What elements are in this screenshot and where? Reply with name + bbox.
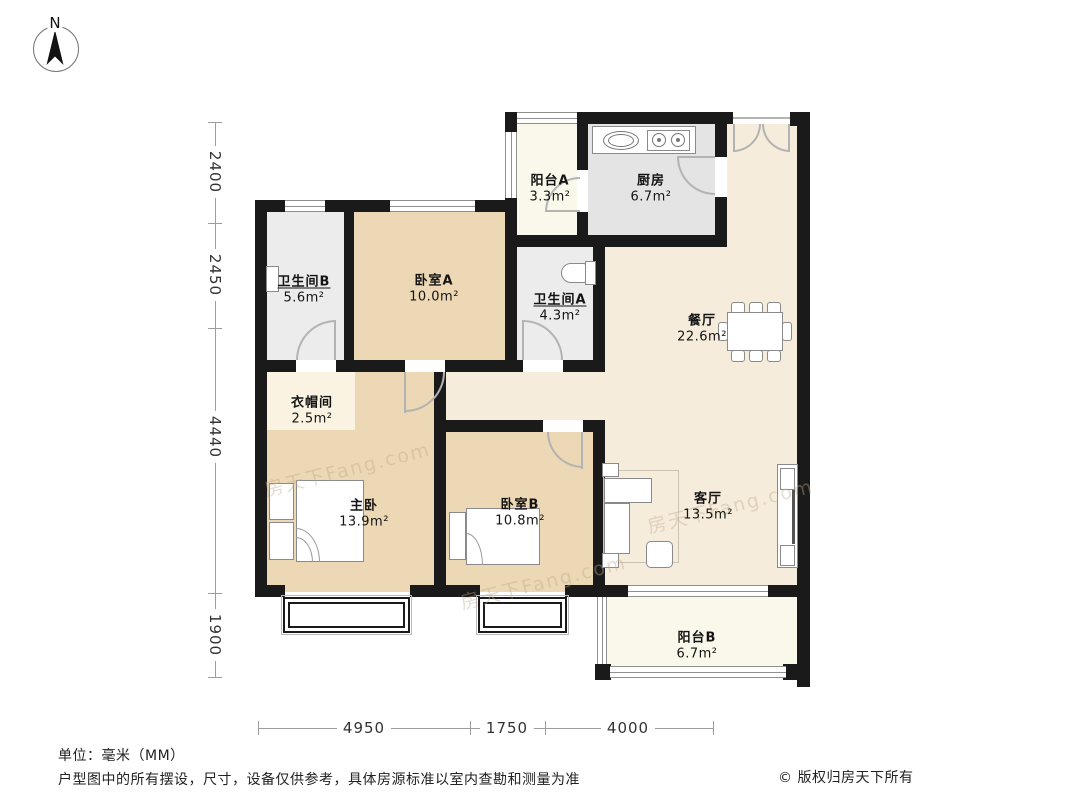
wall: [344, 212, 354, 360]
wall: [797, 112, 810, 687]
nightstand: [449, 512, 466, 560]
bay-window-bedroom-b: [478, 597, 567, 633]
dim-label: 4000: [601, 718, 655, 738]
bathroom-a-door-leaf: [522, 320, 524, 360]
compass-north-label: N: [47, 14, 62, 32]
dim-label: 4440: [205, 411, 225, 463]
bedroom-b-door-leaf: [581, 432, 583, 469]
unit-note: 单位：毫米（MM）: [58, 745, 185, 765]
dim-tick: [470, 721, 471, 735]
balcony-a-door-leaf: [545, 210, 580, 212]
room-label-bedroom-a: 卧室A 10.0m²: [409, 270, 459, 305]
entry-door-left-leaf: [733, 124, 735, 152]
stove-burner: [671, 133, 685, 147]
wall: [505, 235, 727, 247]
dim-tick: [208, 223, 222, 224]
dim-tick: [258, 721, 259, 735]
kitchen-door-leaf: [677, 156, 715, 158]
tv-cabinet-shelf: [780, 545, 795, 566]
disclaimer-text: 户型图中的所有摆设，尺寸，设备仅供参考，具体房源标准以室内查勘和测量为准: [58, 769, 580, 789]
tv-cabinet-shelf: [780, 468, 795, 490]
room-label-balcony-b: 阳台B 6.7m²: [676, 627, 717, 662]
sofa-armrest: [602, 463, 619, 477]
dining-chair: [782, 322, 792, 341]
entry-threshold: [733, 117, 790, 119]
nightstand: [269, 483, 294, 520]
wall: [255, 200, 267, 597]
dim-label: 4950: [337, 718, 391, 738]
dining-table: [727, 312, 783, 351]
wall: [336, 360, 405, 372]
balcony-railing: [610, 666, 786, 678]
window: [597, 597, 607, 664]
dim-label: 2400: [205, 146, 225, 198]
copyright-text: © 版权归房天下所有: [778, 767, 913, 787]
dim-label: 1900: [205, 609, 225, 661]
dining-chair: [767, 350, 781, 362]
dim-label: 1750: [480, 718, 534, 738]
dim-tick: [545, 721, 546, 735]
room-label-bathroom-a: 卫生间A 4.3m²: [533, 289, 586, 324]
wall: [577, 124, 588, 170]
room-label-living: 客厅 13.5m²: [683, 488, 733, 523]
dining-chair: [749, 350, 763, 362]
room-label-bathroom-b: 卫生间B 5.6m²: [278, 271, 331, 306]
sofa-chaise: [604, 478, 652, 503]
window: [285, 200, 325, 212]
wall: [563, 360, 605, 372]
master-door-leaf: [404, 372, 406, 413]
dim-tick: [208, 677, 222, 678]
room-label-kitchen: 厨房 6.7m²: [630, 170, 671, 205]
wall: [768, 585, 797, 597]
sliding-door: [628, 585, 768, 597]
sofa-armrest: [602, 553, 619, 568]
window: [390, 200, 475, 212]
floor-plan-page: N: [0, 0, 1066, 800]
dim-tick: [208, 593, 222, 594]
wall: [783, 664, 810, 680]
sofa-seat: [604, 503, 630, 554]
room-label-master: 主卧 13.9m²: [339, 495, 389, 530]
wall: [410, 585, 480, 597]
dim-tick: [208, 328, 222, 329]
tv-icon: [792, 490, 795, 544]
room-label-balcony-a: 阳台A 3.3m²: [529, 170, 570, 205]
hallway-floor: [446, 372, 607, 420]
wall: [597, 585, 628, 597]
nightstand: [269, 522, 294, 560]
wall: [446, 420, 543, 432]
dining-chair: [731, 350, 745, 362]
bathroom-b-door-leaf: [334, 320, 336, 360]
entry-door-right-leaf: [788, 124, 790, 152]
armchair: [646, 541, 673, 568]
sink-inner: [608, 134, 634, 147]
wall: [434, 372, 446, 592]
window: [517, 112, 577, 124]
wall: [325, 200, 390, 212]
bay-window-master: [283, 597, 410, 633]
north-arrow-icon: [33, 26, 77, 70]
wall: [715, 124, 727, 157]
dim-tick: [713, 721, 714, 735]
wall: [595, 664, 611, 680]
wall: [267, 360, 296, 372]
dim-tick: [208, 122, 222, 123]
room-label-cloakroom: 衣帽间 2.5m²: [291, 392, 333, 427]
dim-label: 2450: [205, 249, 225, 301]
toilet-tank: [585, 261, 596, 285]
room-label-bedroom-b: 卧室B 10.8m²: [495, 494, 545, 529]
window: [505, 132, 517, 198]
wall: [475, 200, 517, 212]
wall: [505, 247, 517, 360]
room-label-dining: 餐厅 22.6m²: [677, 310, 727, 345]
stove-burner: [652, 133, 666, 147]
toilet-icon: [561, 263, 586, 283]
wall: [445, 360, 523, 372]
